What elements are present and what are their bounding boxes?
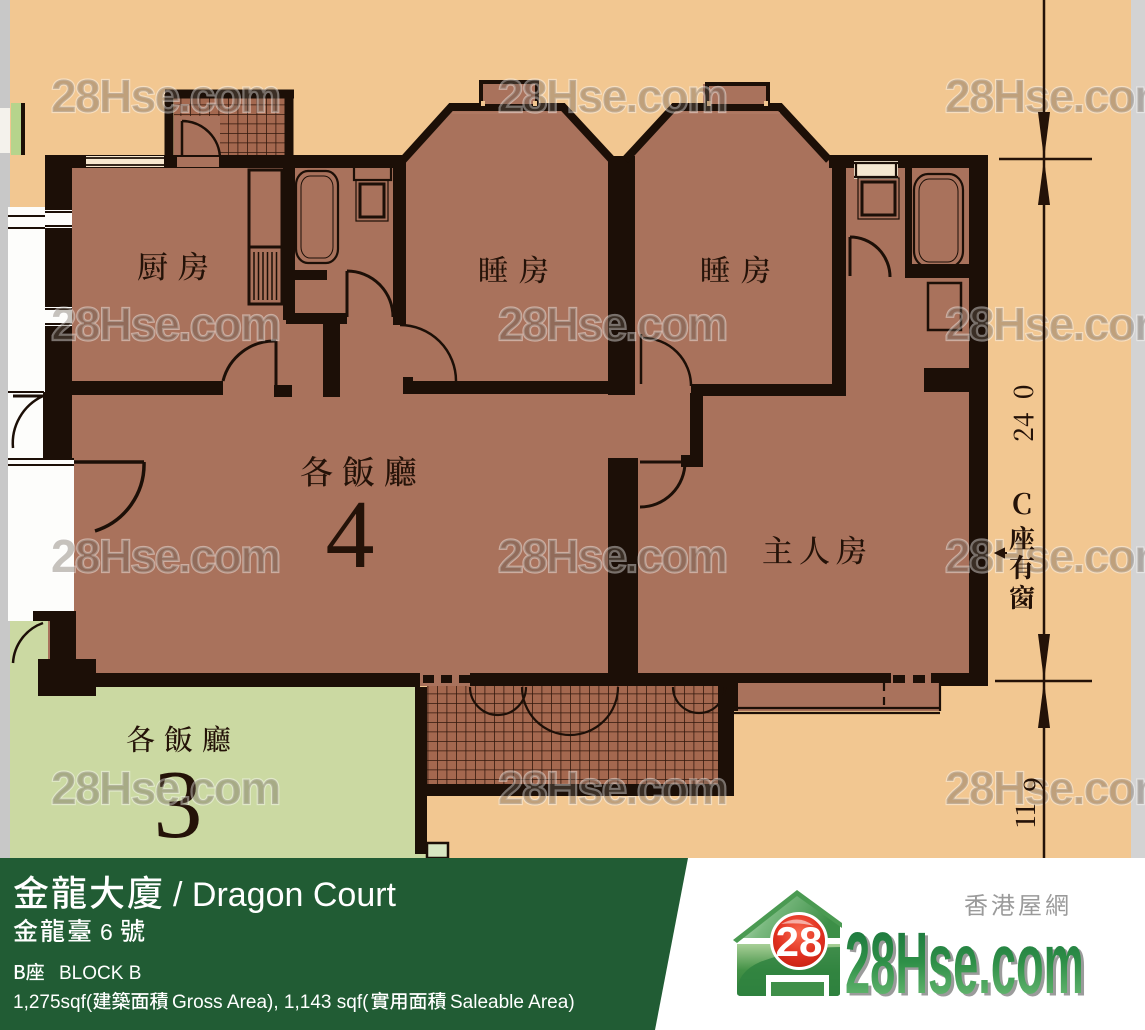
svg-text:28Hse.com: 28Hse.com <box>498 70 727 122</box>
svg-text:28Hse.com: 28Hse.com <box>51 298 280 350</box>
svg-text:BLOCK B: BLOCK B <box>59 963 141 984</box>
svg-text:28Hse.com: 28Hse.com <box>498 298 727 350</box>
svg-text:Saleable Area): Saleable Area) <box>450 992 575 1013</box>
svg-text:28Hse.com: 28Hse.com <box>498 530 727 582</box>
svg-text:28Hse.com: 28Hse.com <box>845 914 1084 1012</box>
svg-text:28Hse.com: 28Hse.com <box>51 530 280 582</box>
svg-text:Gross Area), 1,143 sqf(: Gross Area), 1,143 sqf( <box>172 992 369 1013</box>
svg-text:28Hse.com: 28Hse.com <box>51 70 280 122</box>
svg-text:/ Dragon Court: / Dragon Court <box>173 876 397 914</box>
svg-text:1,275sqf(: 1,275sqf( <box>13 992 93 1013</box>
svg-text:4: 4 <box>326 481 375 589</box>
svg-text:28Hse.com: 28Hse.com <box>498 762 727 814</box>
svg-text:6: 6 <box>100 919 113 945</box>
svg-text:28Hse.com: 28Hse.com <box>51 762 280 814</box>
svg-text:28: 28 <box>776 918 823 965</box>
